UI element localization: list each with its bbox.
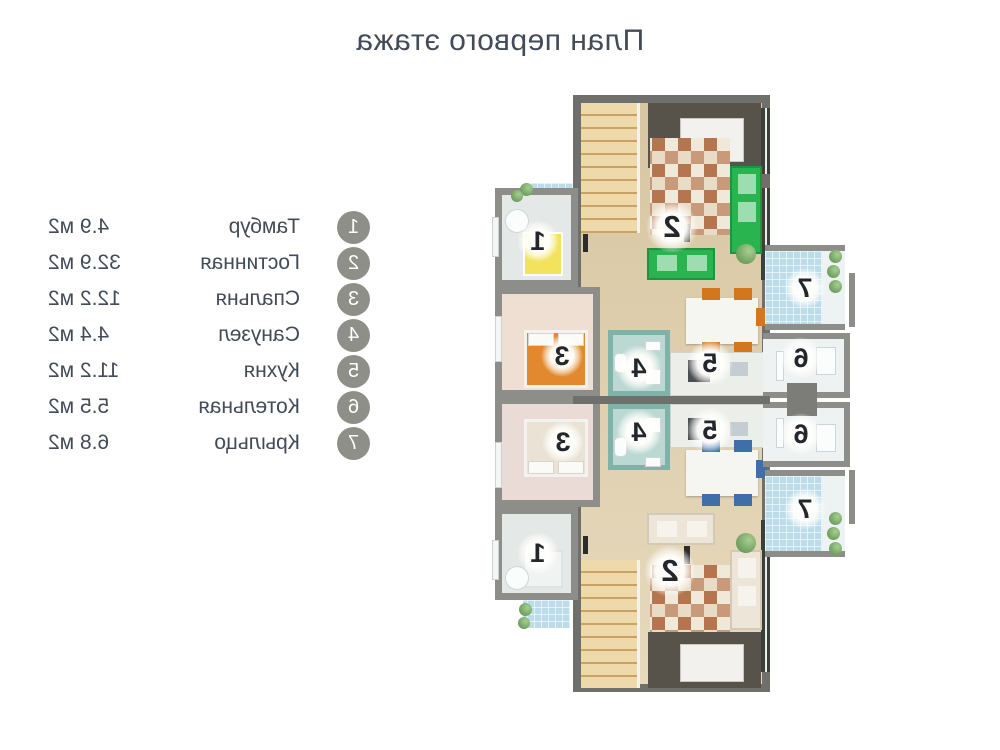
dining-table-bottom (686, 450, 758, 496)
legend-number-badge: 1 (337, 211, 370, 244)
plant (736, 244, 756, 264)
legend-item: 5 Кухня 11.2 м2 (48, 353, 370, 389)
window (761, 606, 770, 672)
sofa-cushion (738, 558, 756, 578)
room-marker-bedroom-top: 3 (541, 335, 583, 377)
plant (827, 527, 840, 540)
room-marker-living-top: 2 (646, 201, 698, 253)
legend-room-area: 4.4 м2 (48, 323, 109, 347)
floor-plan: 1 2 3 4 5 6 7 1 2 3 4 5 6 7 (490, 88, 870, 700)
room-marker-kitchen-bottom: 5 (687, 407, 733, 453)
legend-room-label: Спальня (216, 287, 300, 311)
sofa-cushion (738, 174, 756, 194)
plant (736, 533, 756, 553)
window (495, 442, 502, 488)
sofa-cushion (657, 255, 677, 271)
door-leaf (583, 536, 588, 554)
room-marker-boiler-top: 6 (780, 337, 822, 379)
legend-room-label: Тамбур (229, 215, 300, 239)
page-title: План первого этажа (0, 24, 1000, 58)
room-marker-living-bottom: 2 (644, 545, 696, 597)
legend-room-area: 4.9 м2 (48, 215, 109, 239)
plant (518, 617, 530, 629)
legend-room-area: 12.2 м2 (48, 287, 121, 311)
door-leaf (583, 234, 588, 252)
legend-room-area: 11.2 м2 (48, 359, 119, 383)
room-marker-tambour-bottom: 1 (517, 532, 559, 574)
plant (827, 265, 840, 278)
room-legend: 1 Тамбур 4.9 м2 2 Гостинная 32.9 м2 3 Сп… (48, 209, 370, 461)
sofa-cushion (738, 586, 756, 606)
plant (829, 280, 842, 293)
chair-orange (734, 288, 752, 300)
tv-cabinet-bottom (680, 644, 744, 682)
legend-item: 2 Гостинная 32.9 м2 (48, 245, 370, 281)
sofa-bottom (647, 513, 715, 545)
chair-blue (734, 440, 752, 452)
sofa-cushion (657, 521, 677, 537)
room-marker-porch-bottom: 7 (784, 488, 826, 530)
room-marker-kitchen-top: 5 (687, 340, 733, 386)
sofa-cushion (687, 521, 707, 537)
plant (829, 250, 842, 263)
room-marker-porch-top: 7 (784, 267, 826, 309)
corner-sofa-top (730, 166, 762, 254)
mirrored-artwork: План первого этажа 1 Тамбур 4.9 м2 2 Гос… (0, 0, 1000, 750)
legend-room-label: Крыльцо (214, 431, 300, 455)
window (492, 217, 499, 257)
sofa-cushion (687, 255, 707, 271)
legend-room-area: 6.8 м2 (48, 431, 109, 455)
room-marker-boiler-bottom: 6 (780, 413, 822, 455)
legend-item: 6 Котельная 5.5 м2 (48, 389, 370, 425)
legend-item: 4 Санузел 4.4 м2 (48, 317, 370, 353)
window (495, 316, 502, 362)
plant (829, 542, 842, 555)
legend-room-label: Кухня (244, 359, 300, 383)
window (492, 540, 499, 580)
plant (829, 512, 842, 525)
legend-number-badge: 3 (337, 283, 370, 316)
window (761, 108, 770, 174)
washbasin (645, 457, 661, 467)
porch-rail-wall (849, 470, 855, 524)
room-marker-bathroom-top: 4 (616, 345, 662, 391)
staircase-bottom (581, 560, 640, 688)
sofa-top (647, 248, 715, 280)
chair-orange (702, 288, 720, 300)
legend-number-badge: 2 (337, 247, 370, 280)
dining-table-top (686, 298, 758, 344)
chair-blue (734, 494, 752, 506)
room-marker-bathroom-bottom: 4 (616, 409, 662, 455)
legend-room-label: Санузел (218, 323, 300, 347)
legend-number-badge: 5 (337, 355, 370, 388)
chair-blue (702, 494, 720, 506)
legend-room-area: 32.9 м2 (48, 251, 121, 275)
sofa-cushion (738, 202, 756, 222)
legend-item: 1 Тамбур 4.9 м2 (48, 209, 370, 245)
legend-number-badge: 6 (337, 391, 370, 424)
corner-sofa-bottom (730, 550, 762, 630)
floor-plan-page: План первого этажа 1 Тамбур 4.9 м2 2 Гос… (0, 0, 1000, 750)
legend-item: 7 Крыльцо 6.8 м2 (48, 425, 370, 461)
legend-room-label: Котельная (198, 395, 300, 419)
porch-rail-wall (849, 273, 855, 327)
unit-dividing-wall (573, 396, 770, 404)
plant (519, 603, 532, 616)
pillow (528, 461, 554, 474)
legend-room-area: 5.5 м2 (48, 395, 109, 419)
staircase-top (581, 103, 640, 233)
legend-item: 3 Спальня 12.2 м2 (48, 281, 370, 317)
legend-number-badge: 4 (337, 319, 370, 352)
legend-number-badge: 7 (337, 427, 370, 460)
plant (511, 190, 523, 202)
room-marker-bedroom-bottom: 3 (542, 421, 584, 463)
legend-room-label: Гостинная (200, 251, 300, 275)
wall-stub (787, 383, 817, 416)
room-marker-tambour-top: 1 (517, 220, 559, 262)
